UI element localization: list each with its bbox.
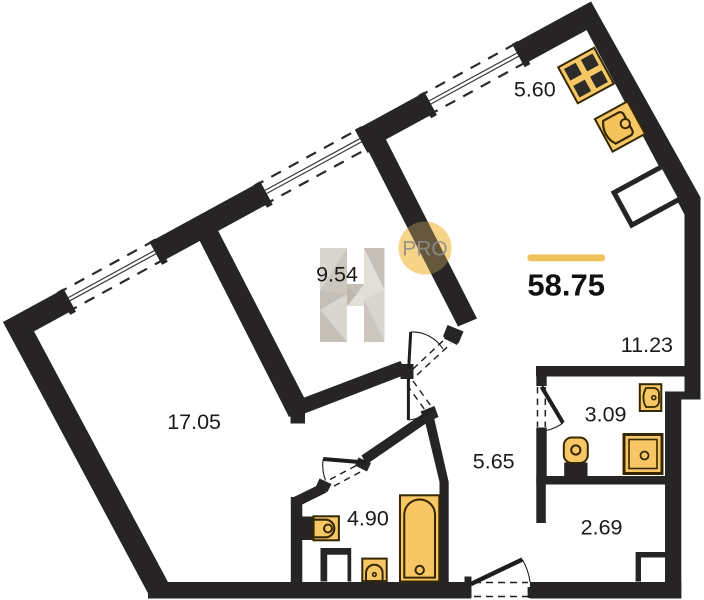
svg-text:9.54: 9.54 <box>316 263 358 287</box>
svg-text:5.60: 5.60 <box>514 77 556 101</box>
svg-text:11.23: 11.23 <box>621 333 673 357</box>
svg-text:5.65: 5.65 <box>473 449 515 473</box>
svg-text:58.75: 58.75 <box>527 268 605 303</box>
svg-text:PRO: PRO <box>402 238 448 261</box>
svg-text:4.90: 4.90 <box>347 507 389 531</box>
svg-text:17.05: 17.05 <box>167 410 221 434</box>
svg-text:2.69: 2.69 <box>581 516 623 540</box>
svg-text:3.09: 3.09 <box>585 403 627 427</box>
